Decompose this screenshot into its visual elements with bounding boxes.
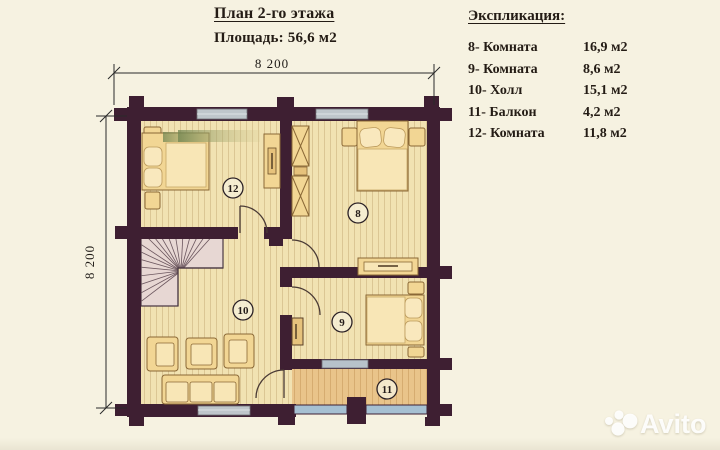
- wardrobe-room8: [292, 126, 309, 216]
- room-label-12: 12: [223, 178, 243, 198]
- log-end: [440, 358, 452, 370]
- wall-center-upper: [280, 121, 292, 239]
- armchair-hall: [186, 338, 217, 369]
- avito-logo-icon: [605, 410, 637, 435]
- log-end: [425, 417, 440, 426]
- log-end: [115, 404, 127, 416]
- room-number: 11: [382, 384, 392, 396]
- log-end: [424, 96, 439, 108]
- pillow: [144, 168, 162, 187]
- nightstand: [342, 128, 357, 146]
- door-leaf-room9: [292, 318, 303, 345]
- window-hall: [198, 406, 250, 415]
- log-end: [440, 108, 452, 121]
- wall-top: [127, 107, 440, 121]
- wall-room12-hall: [141, 227, 238, 239]
- nightstand: [145, 192, 160, 209]
- room-number: 9: [339, 317, 345, 329]
- room-label-10: 10: [233, 300, 253, 320]
- wall-center-lower: [280, 315, 292, 370]
- log-end: [114, 108, 127, 121]
- armchair-hall: [224, 334, 254, 368]
- floor-plan-drawing: 12 8 10 9 11: [0, 0, 720, 450]
- nightstand: [409, 128, 425, 146]
- dimension-width-label: 8 200: [255, 56, 289, 71]
- window-room9-balcony: [322, 360, 368, 368]
- log-end: [129, 96, 144, 108]
- log-end: [440, 266, 452, 279]
- log-end: [129, 417, 144, 426]
- bottom-shade: [0, 438, 720, 450]
- cabinet-room12: [264, 134, 280, 188]
- armchair-hall: [147, 337, 178, 371]
- nightstand: [408, 282, 424, 294]
- room-number: 12: [228, 183, 240, 195]
- shelf-room12: [178, 130, 260, 142]
- pillow: [405, 298, 422, 318]
- dresser-room8: [358, 258, 418, 275]
- door-hinge-block: [269, 239, 283, 246]
- log-end: [277, 97, 294, 108]
- pillow: [383, 127, 406, 148]
- log-end: [278, 415, 295, 425]
- pillow: [405, 321, 422, 341]
- room-label-11: 11: [377, 379, 397, 399]
- room-label-9: 9: [332, 312, 352, 332]
- wall-center-mid: [280, 267, 292, 287]
- nightstand: [408, 347, 424, 357]
- log-end: [115, 226, 127, 239]
- pillow: [359, 127, 382, 148]
- balcony-post: [347, 397, 366, 424]
- wall-left: [127, 107, 141, 417]
- dimension-height-label: 8 200: [82, 245, 97, 279]
- room-number: 10: [238, 305, 250, 317]
- log-end: [440, 404, 452, 416]
- dimension-left: 8 200: [82, 110, 127, 414]
- pillow: [144, 147, 162, 166]
- room-number: 8: [355, 208, 361, 220]
- floor-plan-page: План 2-го этажа Площадь: 56,6 м2 Эксплик…: [0, 0, 720, 450]
- watermark-text: Avito: [640, 409, 707, 439]
- dimension-top: 8 200: [108, 56, 440, 105]
- sofa-hall: [162, 375, 239, 404]
- wall-right: [427, 107, 440, 417]
- room-label-8: 8: [348, 203, 368, 223]
